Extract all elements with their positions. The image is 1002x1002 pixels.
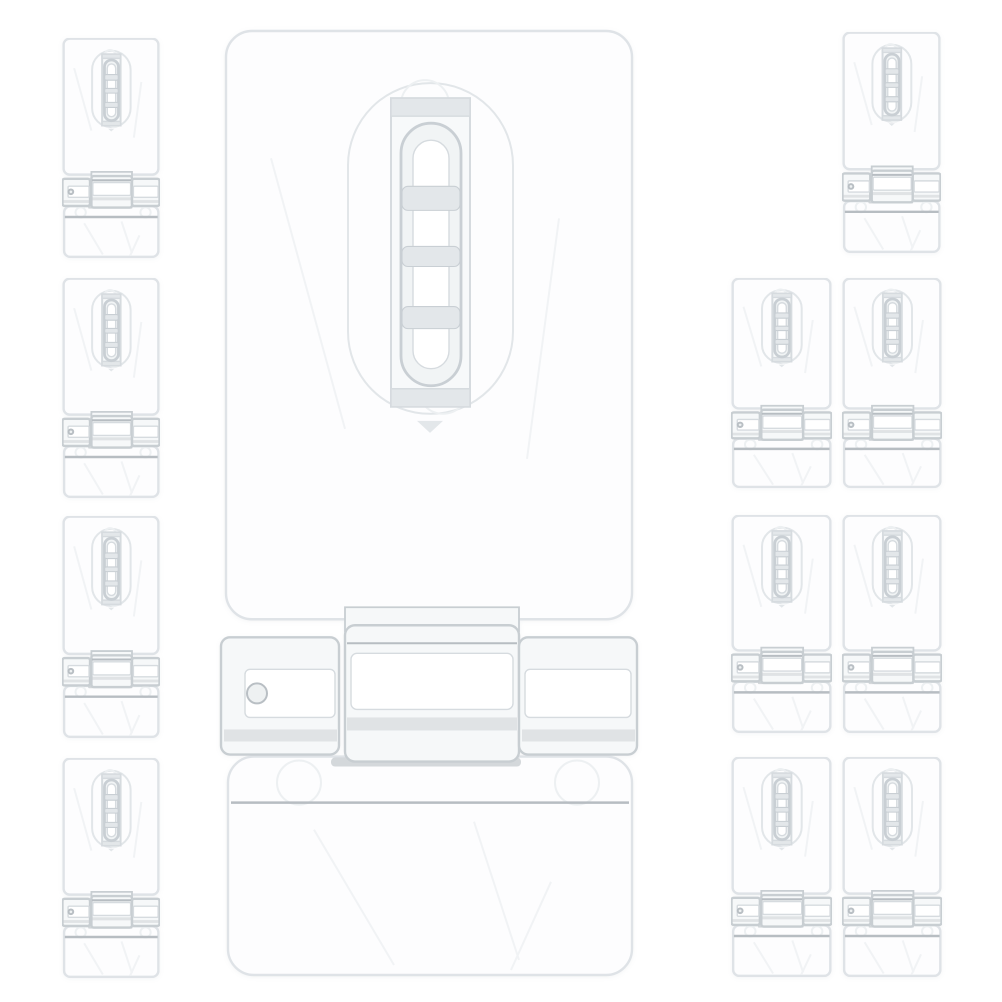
loop-reflection-band [105, 315, 119, 321]
hinge-pin-hole [69, 189, 74, 194]
hinge-reflection-center [92, 437, 132, 440]
hasp-latch-small-right-row3-a [731, 515, 832, 733]
hasp-bottom-plate [733, 439, 830, 487]
hasp-latch-small-right-top [842, 32, 941, 253]
hasp-bottom-plate [733, 682, 830, 732]
hasp-bottom-plate [228, 757, 632, 975]
hinge-reflection-right [804, 676, 831, 679]
hinge-barrel-facet [763, 902, 802, 915]
hasp-bottom-plate [844, 439, 940, 487]
loop-reflection-band [886, 339, 900, 344]
hinge-barrel-facet [351, 653, 513, 709]
loop-reflection-band [775, 313, 789, 318]
hinge-reflection-left [843, 433, 870, 436]
hinge-reflection-left [732, 676, 759, 679]
hasp-latch-small-right-row2-b [842, 278, 942, 488]
hasp-latch-small-left-4 [62, 758, 160, 978]
hasp-latch-small-left-2 [62, 278, 160, 498]
loop-reflection-band [775, 807, 789, 812]
hinge-barrel-facet [93, 423, 131, 436]
hinge-pin-hole [849, 423, 854, 427]
hinge-reflection-center [872, 192, 912, 195]
staple-slot-top-cap [883, 773, 902, 777]
staple-slot-top-cap [772, 293, 791, 297]
hinge-reflection-right [133, 680, 159, 683]
hinge-knuckle-right-facet [805, 905, 830, 916]
hasp-latch-small-right-row4-a [731, 757, 832, 977]
loop-reflection-band [886, 794, 900, 800]
hinge-pin-hole [738, 908, 743, 913]
loop-reflection-band [885, 69, 899, 75]
hinge-reflection-left [732, 919, 759, 922]
loop-reflection-band [105, 808, 119, 813]
hasp-bottom-plate [733, 925, 830, 975]
hinge-reflection-left [63, 200, 89, 203]
staple-slot-top-cap [102, 774, 120, 778]
hinge-reflection-left [63, 440, 89, 443]
loop-reflection-band [105, 567, 119, 572]
hinge-reflection-center [762, 673, 803, 676]
loop-reflection-band [886, 821, 900, 826]
hinge-reflection-right [522, 729, 635, 741]
hinge-reflection-center [872, 430, 912, 433]
loop-reflection-band [886, 313, 900, 318]
hinge-barrel-facet [763, 658, 802, 671]
hasp-bottom-plate [64, 686, 158, 737]
hinge-knuckle-right-facet [805, 662, 830, 673]
hinge-pin-hole [738, 423, 743, 427]
staple-slot-top-cap [102, 294, 120, 298]
hinge-barrel-facet [93, 662, 131, 675]
hinge-reflection-left [224, 729, 337, 741]
hinge-barrel-facet [873, 902, 912, 915]
hinge-reflection-right [133, 920, 159, 923]
hasp-bottom-plate [64, 206, 158, 256]
loop-reflection-band [105, 342, 119, 347]
loop-reflection-band [105, 102, 119, 107]
hasp-bottom-plate [844, 201, 939, 252]
hinge-reflection-center [92, 917, 132, 920]
hinge-reflection-right [914, 919, 941, 922]
loop-reflection-band [775, 339, 789, 344]
hinge-reflection-center [872, 916, 912, 919]
loop-reflection-band [402, 186, 460, 210]
hinge-reflection-right [133, 440, 159, 443]
hasp-latch-small-left-3 [62, 516, 160, 738]
hasp-bottom-plate [64, 926, 158, 976]
loop-reflection-band [886, 565, 900, 570]
loop-reflection-band [775, 565, 789, 570]
hinge-pin-hole [69, 909, 74, 914]
hinge-reflection-left [843, 919, 870, 922]
hinge-knuckle-right-facet [915, 419, 940, 430]
hinge-reflection-right [913, 195, 940, 198]
hinge-knuckle-right-facet [133, 426, 158, 437]
loop-reflection-band [105, 75, 119, 81]
loop-reflection-band [775, 326, 789, 330]
hasp-bottom-plate [844, 925, 940, 975]
hinge-barrel-facet [763, 416, 802, 428]
hinge-knuckle-right-facet [133, 186, 158, 197]
hasp-latch-large-center [219, 28, 639, 980]
hinge-reflection-left [732, 433, 759, 436]
loop-reflection-band [775, 794, 789, 800]
staple-slot-bottom-cap [391, 389, 470, 407]
hinge-reflection-left [63, 920, 89, 923]
hinge-pin-hole [738, 665, 743, 670]
staple-slot-top-cap [102, 54, 120, 58]
hinge-reflection-center [92, 677, 132, 680]
loop-reflection-band [402, 307, 460, 329]
hinge-reflection-center [762, 430, 803, 433]
staple-slot-top-cap [391, 98, 470, 116]
loop-reflection-band [105, 822, 119, 827]
hinge-knuckle-right-facet [915, 905, 940, 916]
staple-slot-top-cap [102, 532, 120, 536]
hasp-bottom-plate [64, 446, 158, 496]
loop-reflection-band [885, 97, 899, 102]
hinge-reflection-left [843, 195, 870, 198]
hinge-reflection-center [347, 717, 517, 730]
loop-reflection-band [775, 579, 789, 584]
loop-reflection-band [775, 821, 789, 826]
hasp-bottom-plate [844, 682, 940, 732]
hinge-knuckle-right-facet [805, 419, 830, 430]
loop-reflection-band [105, 581, 119, 586]
hinge-barrel-facet [93, 903, 131, 916]
hinge-reflection-left [63, 680, 89, 683]
hasp-latch-small-right-row3-b [842, 515, 942, 733]
hinge-pin-hole [247, 683, 267, 703]
hinge-pin-hole [849, 184, 854, 189]
hinge-pin-hole [849, 908, 854, 913]
hinge-reflection-right [914, 676, 941, 679]
loop-reflection-band [105, 328, 119, 333]
hinge-knuckle-right-facet [525, 669, 631, 717]
hinge-barrel-facet [93, 183, 131, 196]
hinge-knuckle-right-facet [133, 666, 158, 677]
hinge-pin-hole [69, 429, 74, 434]
staple-slot-top-cap [883, 293, 902, 297]
loop-reflection-band [105, 88, 119, 93]
loop-reflection-band [105, 553, 119, 559]
hinge-reflection-right [133, 200, 159, 203]
staple-slot-top-cap [772, 773, 791, 777]
loop-reflection-band [886, 579, 900, 584]
hinge-knuckle-right-facet [914, 181, 939, 192]
staple-slot-top-cap [772, 531, 791, 535]
hinge-reflection-right [914, 433, 941, 436]
hinge-reflection-right [804, 919, 831, 922]
hasp-latch-small-right-row4-b [842, 757, 942, 977]
staple-slot-top-cap [883, 531, 902, 535]
hinge-knuckle-right-facet [915, 662, 940, 673]
hinge-pin-hole [849, 665, 854, 670]
loop-reflection-band [885, 83, 899, 88]
hasp-latch-small-left-1 [62, 38, 160, 258]
loop-reflection-band [775, 551, 789, 557]
hinge-barrel-facet [873, 416, 912, 428]
hinge-reflection-right [804, 433, 831, 436]
loop-reflection-band [886, 551, 900, 557]
loop-reflection-band [886, 807, 900, 812]
hinge-barrel-facet [873, 658, 912, 671]
product-photo-canvas [0, 0, 1002, 1002]
loop-reflection-band [402, 246, 460, 266]
hinge-pin-hole [69, 669, 74, 674]
hinge-reflection-center [762, 916, 803, 919]
hinge-knuckle-right-facet [133, 906, 158, 917]
hinge-reflection-left [843, 676, 870, 679]
staple-slot-top-cap [883, 48, 902, 52]
hinge-reflection-center [92, 197, 132, 200]
hasp-latch-small-right-row2-a [731, 278, 832, 488]
loop-reflection-band [886, 326, 900, 330]
hinge-barrel-facet [873, 177, 911, 190]
hinge-reflection-center [872, 673, 912, 676]
loop-reflection-band [105, 795, 119, 801]
